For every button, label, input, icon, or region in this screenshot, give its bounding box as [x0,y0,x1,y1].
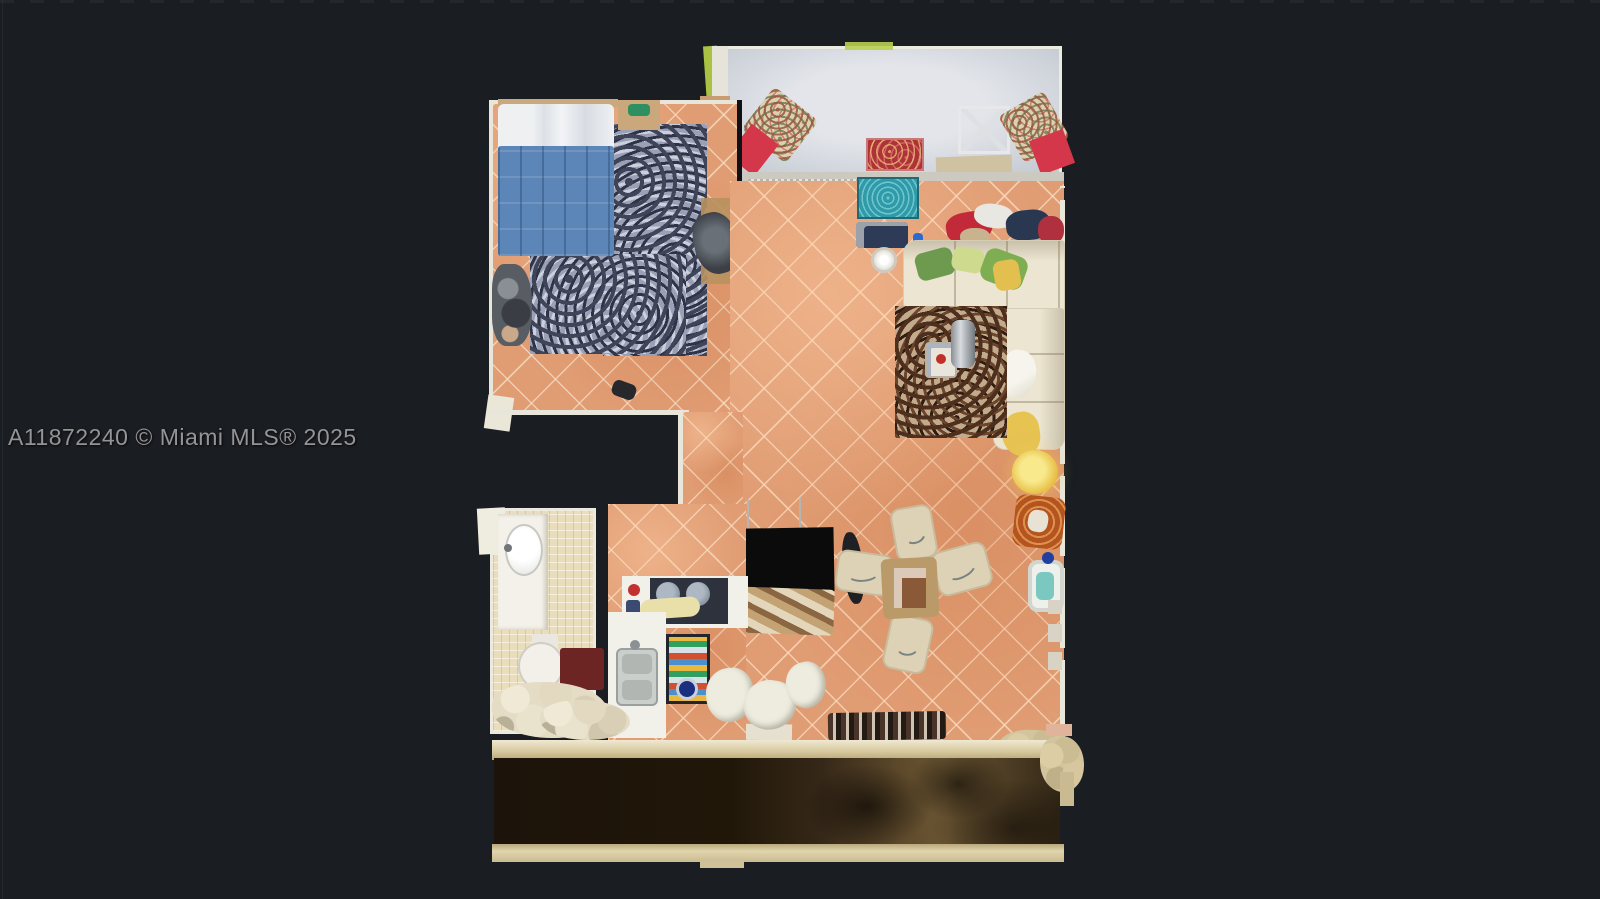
walkway-floor [494,758,1060,846]
sink-faucet [630,640,640,650]
rug-tray-red-dot [936,354,946,364]
dark-door-mat [856,222,908,248]
right-wall-pieces [1048,600,1062,670]
corridor-floor [683,412,743,512]
dining-chair-north [889,503,940,563]
round-side-table [871,247,897,273]
stove-red-knob [628,584,640,596]
pet-fountain-blue-bottle [1042,552,1054,564]
terrace-red-rug [866,138,924,171]
bedroom-bottom-wall [489,410,689,415]
mls-photo-viewer: A11872240 © Miami MLS® 2025 [0,0,1600,899]
bathroom-door-scan-mess [540,700,630,740]
dining-table-top [894,568,926,608]
nightstand-green-item [628,104,650,116]
walkway-top-wall [492,740,1054,760]
pet-fountain-teal [1036,572,1054,600]
bed-blue-duvet [498,146,614,256]
bed-pillows [498,104,614,148]
shoes-row [828,711,946,741]
sofa-pillow-yellow-1 [992,258,1023,292]
walkway-bottom-wall [492,844,1064,862]
kitchen-mat-circle [676,678,698,700]
teal-rug [857,177,919,219]
tv-cable-1 [747,500,749,530]
vanity-faucet [504,544,512,552]
tile-remnant [1046,724,1072,736]
kitchen-white-chairs [706,660,828,740]
walkway-bottom-notch [700,860,744,868]
metal-bucket [951,320,975,368]
bedroom-rug-left [530,254,686,354]
walkway-right-wall-piece [1060,772,1074,806]
sink-basin-1 [622,654,652,674]
bedroom-chair-with-clothes [492,264,532,346]
terrace-planter-green-top [845,42,893,50]
terrace-corner-piece [712,46,728,96]
floorplan-image [0,0,1600,899]
tv-cable-2 [799,498,801,530]
sink-basin-2 [622,680,652,700]
floor-lamp-glow [1012,450,1058,494]
